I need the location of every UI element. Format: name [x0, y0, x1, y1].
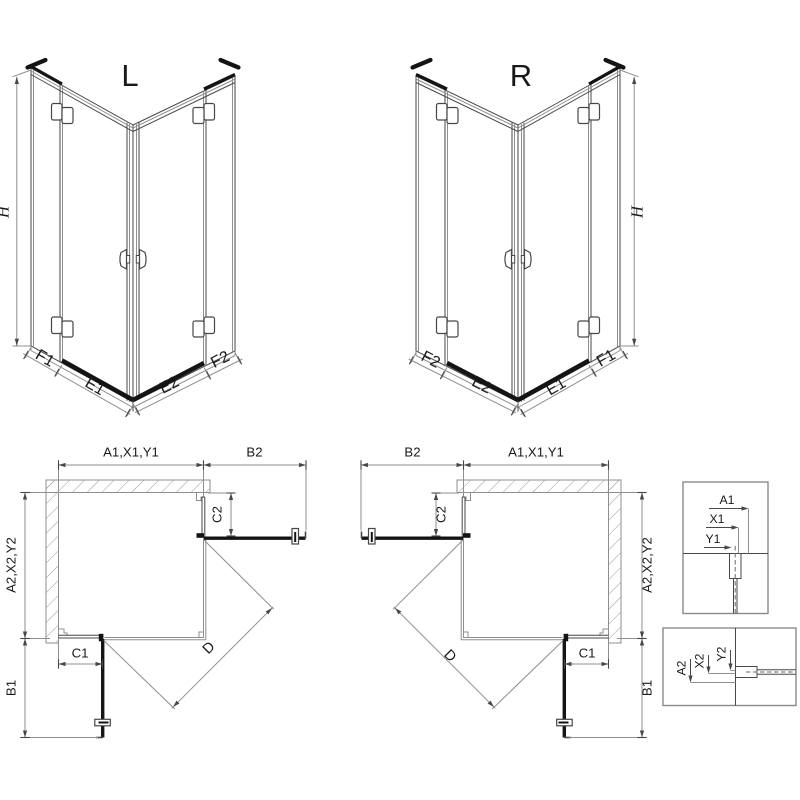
dim-label-f1: F1: [594, 347, 619, 371]
dim-label-e1: E1: [544, 375, 570, 400]
dim-label-a2x2y2: A2,X2,Y2: [640, 537, 655, 593]
dim-label-f2: F2: [208, 348, 232, 372]
dim-label-c1: C1: [579, 646, 596, 661]
dim-label-c2: C2: [210, 506, 225, 523]
dim-label-a1: A1: [720, 493, 735, 507]
dim-label-c1: C1: [72, 646, 89, 661]
dim-label-c2: C2: [434, 506, 449, 523]
plan-right-geometry: [361, 460, 647, 737]
plan-left-geometry: [20, 460, 306, 737]
detail-panel-lower: A2 X2 Y2: [663, 628, 796, 706]
dim-label-b2: B2: [246, 445, 262, 460]
dim-label-h: H: [628, 205, 647, 219]
wall-hatch-top: [46, 480, 210, 493]
wall-hatch-left: [46, 480, 59, 643]
dim-label-f2: F2: [418, 348, 442, 372]
dim-label-f1: F1: [32, 347, 57, 371]
dim-label-h: H: [0, 205, 13, 219]
variant-label-left: L: [121, 58, 138, 93]
dim-label-a2x2y2: A2,X2,Y2: [4, 537, 19, 593]
plan-view-right: B2 A1,X1,Y1 C2 A2,X2,Y2 B1 C1 D: [361, 445, 655, 738]
detail-panel-upper: A1 X1 Y1: [683, 482, 768, 614]
dim-label-a2: A2: [675, 660, 689, 675]
dim-label-x2: X2: [693, 653, 707, 668]
dim-label-e1: E1: [82, 375, 108, 400]
wall-hatch-right: [609, 480, 622, 643]
dim-label-d: D: [440, 647, 459, 666]
dim-label-b2: B2: [404, 445, 420, 460]
dim-label-y2: Y2: [715, 646, 729, 661]
dim-label-d: D: [200, 639, 219, 658]
iso-view-left: L H F1 E1 E2 F2: [0, 58, 242, 417]
dim-label-x1: X1: [710, 512, 725, 526]
iso-view-right: R H F2 E2 E1 F1: [409, 58, 647, 417]
technical-drawing-shower-enclosure: L H F1 E1 E2 F2 R H F2 E2 E1 F1 A1,X1,Y1…: [0, 0, 800, 800]
plan-view-left: A1,X1,Y1 B2 C2 A2,X2,Y2 B1 C1 D: [4, 445, 307, 738]
wall-hatch-top: [457, 480, 621, 493]
variant-label-right: R: [510, 58, 532, 93]
dim-label-a1x1y1: A1,X1,Y1: [508, 445, 564, 460]
dim-label-b1: B1: [4, 680, 19, 696]
dim-label-b1: B1: [640, 680, 655, 696]
dim-label-y1: Y1: [706, 532, 721, 546]
drawing-canvas: L H F1 E1 E2 F2 R H F2 E2 E1 F1 A1,X1,Y1…: [0, 0, 800, 800]
dim-label-a1x1y1: A1,X1,Y1: [103, 445, 159, 460]
